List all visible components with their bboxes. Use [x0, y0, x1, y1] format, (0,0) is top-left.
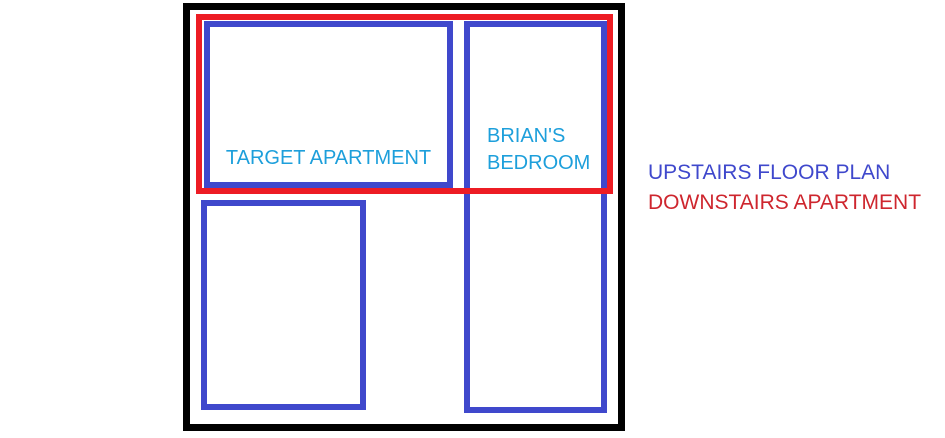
downstairs-apartment-outline [196, 14, 613, 194]
legend-upstairs-floor-plan: UPSTAIRS FLOOR PLAN [648, 158, 921, 188]
legend-downstairs-apartment: DOWNSTAIRS APARTMENT [648, 188, 921, 218]
room-lower-left [201, 200, 366, 410]
floor-plan-canvas: TARGET APARTMENT BRIAN'S BEDROOM UPSTAIR… [0, 0, 945, 438]
legend: UPSTAIRS FLOOR PLAN DOWNSTAIRS APARTMENT [648, 158, 921, 218]
